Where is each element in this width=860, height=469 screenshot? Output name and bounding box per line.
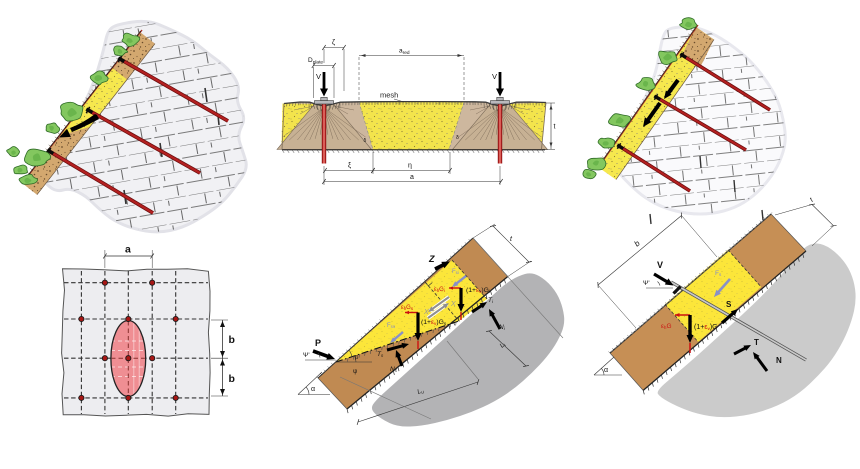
svg-text:Ni: Ni [499,324,506,331]
svg-text:a: a [410,174,414,181]
svg-text:(1+εv)Gi: (1+εv)Gi [466,287,490,294]
svg-text:Ψ': Ψ' [643,280,650,287]
svg-text:η: η [408,163,412,170]
svg-text:β: β [355,355,358,361]
svg-text:Ψ': Ψ' [303,352,310,359]
svg-text:α: α [311,386,315,393]
svg-text:δ: δ [364,138,367,144]
svg-text:ζ: ζ [332,40,335,47]
svg-text:V: V [657,260,663,270]
svg-text:εhG: εhG [661,323,672,330]
svg-text:P: P [315,338,321,348]
svg-text:Fs: Fs [715,270,722,277]
svg-text:ξ: ξ [348,163,351,170]
svg-text:α: α [604,367,608,374]
svg-text:εhGi: εhGi [434,287,445,293]
svg-text:S: S [726,300,732,309]
svg-text:t: t [554,124,556,131]
svg-text:X: X [423,309,429,316]
svg-text:Z: Z [428,254,435,264]
svg-text:Fss: Fss [387,323,396,329]
svg-text:(1+εv)Gs: (1+εv)Gs [421,319,447,326]
svg-text:mesh: mesh [380,91,398,100]
svg-text:Ts: Ts [377,351,384,358]
svg-text:a: a [125,244,131,256]
svg-text:X: X [450,301,456,308]
svg-text:V: V [316,72,321,81]
svg-text:Fsi: Fsi [452,269,459,275]
svg-text:T: T [754,338,759,347]
svg-text:δ: δ [456,135,459,141]
svg-text:b: b [229,334,235,346]
svg-text:ψ: ψ [353,369,357,375]
svg-text:εhGs: εhGs [401,305,414,311]
svg-text:V: V [492,72,497,81]
svg-text:Ns: Ns [390,366,398,373]
svg-text:(1+εv)G: (1+εv)G [694,324,718,332]
svg-text:b: b [229,373,235,385]
svg-text:N: N [776,356,782,365]
